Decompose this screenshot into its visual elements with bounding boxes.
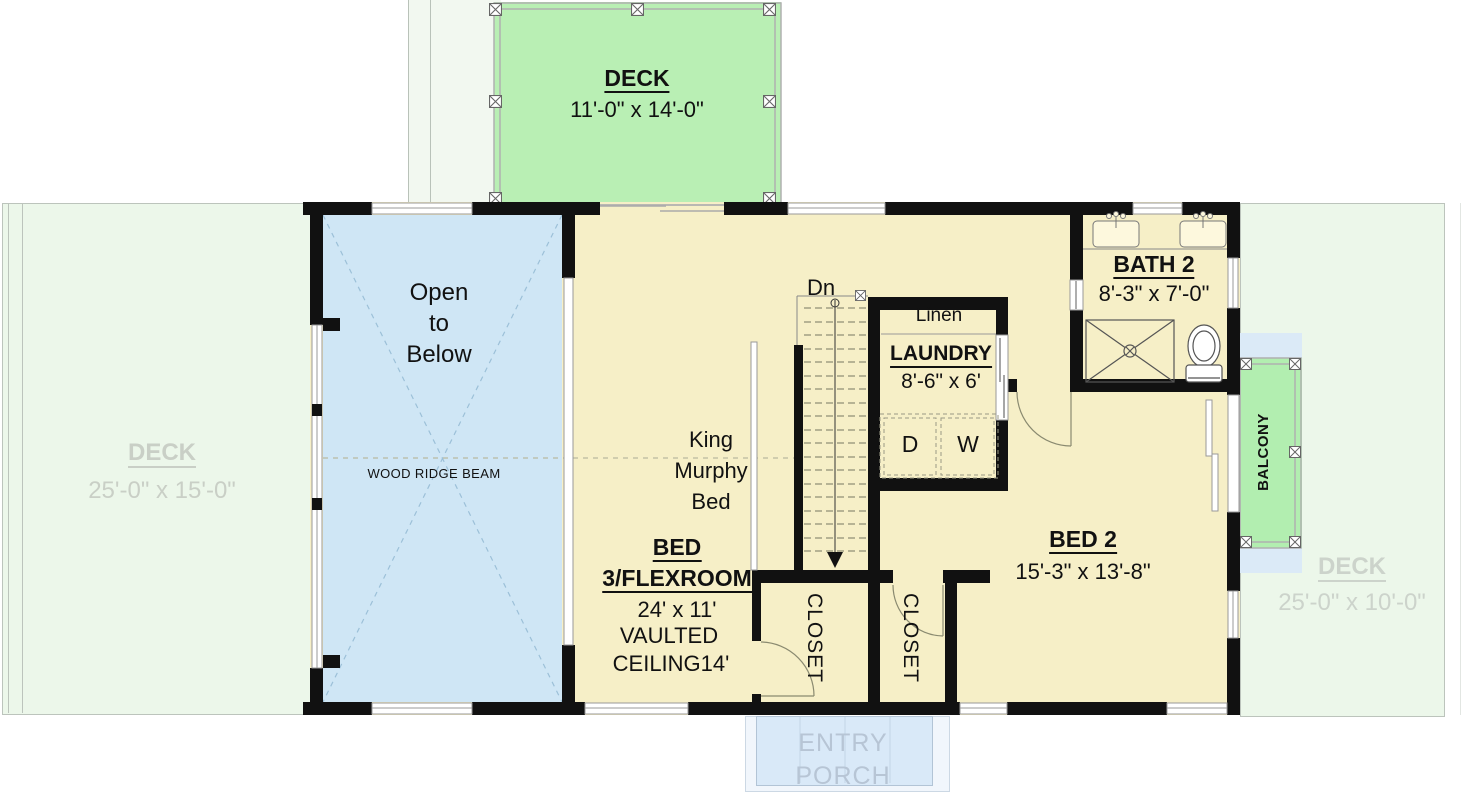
open-line3: Below	[406, 339, 471, 370]
left-deck-line1	[8, 203, 9, 713]
linen-label: Linen	[916, 306, 963, 326]
left-deck-line2	[22, 203, 23, 713]
left-deck-dims: 25'-0" x 15'-0"	[88, 478, 236, 503]
bath2-title: BATH 2	[1113, 252, 1194, 279]
laundry-title: LAUNDRY	[890, 343, 992, 368]
stairs-down-label: Dn	[807, 276, 835, 299]
dryer-label: D	[902, 432, 919, 456]
bed3-dims: 24' x 11'	[638, 598, 717, 621]
bed2-dims: 15'-3" x 13'-8"	[1015, 560, 1150, 583]
wood-ridge-beam-label: WOOD RIDGE BEAM	[367, 467, 500, 481]
open-to-below-label: Open to Below	[406, 277, 471, 370]
bed3-note1: VAULTED	[620, 624, 718, 647]
upper-roof-strip	[408, 0, 501, 205]
balcony-shade-bottom	[1240, 548, 1302, 573]
left-deck-title: DECK	[128, 440, 196, 468]
balcony-label: BALCONY	[1256, 413, 1272, 491]
top-deck-title: DECK	[604, 66, 669, 93]
porch-line1: ENTRY	[795, 727, 890, 760]
washer-label: W	[957, 432, 979, 456]
right-deck-title: DECK	[1318, 554, 1386, 582]
murphy-line1: King	[674, 424, 747, 455]
laundry-dims: 8'-6" x 6'	[901, 371, 981, 393]
balcony-shade-top	[1240, 333, 1302, 358]
entry-porch-label: ENTRY PORCH	[795, 727, 890, 793]
murphy-bed-label: King Murphy Bed	[674, 424, 747, 517]
porch-line2: PORCH	[795, 760, 890, 793]
right-deck-dims: 25'-0" x 10'-0"	[1278, 590, 1426, 615]
bed3-note2: CEILING14'	[613, 652, 730, 675]
upper-roof-strip-line	[430, 0, 431, 205]
murphy-line3: Bed	[674, 486, 747, 517]
bed3-title2: 3/FLEXROOM	[602, 566, 752, 593]
closet-right-label: CLOSET	[899, 593, 921, 683]
floor-plan: DECK 11'-0" x 14'-0" DECK 25'-0" x 15'-0…	[0, 0, 1464, 800]
bed3-title1: BED	[653, 535, 702, 562]
open-line1: Open	[406, 277, 471, 308]
bed2-title: BED 2	[1049, 527, 1117, 554]
right-deck-edge-line	[1460, 203, 1461, 715]
murphy-line2: Murphy	[674, 455, 747, 486]
top-deck-dims: 11'-0" x 14'-0"	[570, 98, 704, 121]
closet-left-label: CLOSET	[803, 593, 825, 683]
open-line2: to	[406, 308, 471, 339]
bath2-dims: 8'-3" x 7'-0"	[1099, 282, 1210, 305]
